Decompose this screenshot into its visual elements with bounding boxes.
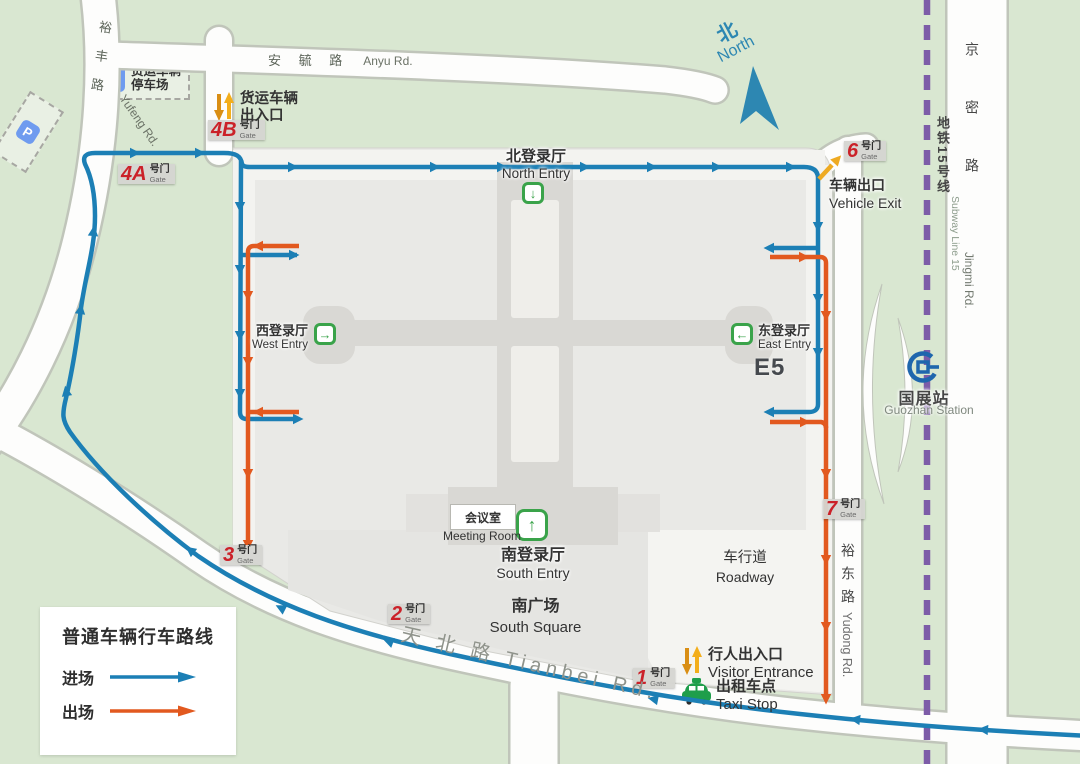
hall-desc: 煤矿机电 bbox=[414, 274, 471, 291]
parking-icon: P bbox=[756, 441, 792, 477]
gate-number: 3 bbox=[223, 546, 234, 564]
hall-w2: W2 煤矿机电生产辅助系统 bbox=[355, 343, 483, 400]
legend-entry-arrow bbox=[106, 670, 202, 684]
south-square-label: 南广场 South Square bbox=[468, 597, 603, 637]
hall-desc: 煤矿机电 bbox=[414, 346, 471, 363]
visitor-entrance-label: 行人出入口 Visitor Entrance bbox=[708, 646, 814, 682]
meeting-room-label: 会议室 bbox=[465, 509, 501, 526]
hall-code: W4 bbox=[368, 194, 414, 227]
hall-desc: 掘进 bbox=[591, 283, 643, 300]
yudong-rd-zh: 裕东路 bbox=[838, 543, 858, 612]
east-entry-icon: ← bbox=[731, 323, 753, 345]
legend-entry-row: 进场 bbox=[62, 665, 236, 689]
legend-exit-arrow bbox=[106, 704, 202, 718]
parking-lot-west-top: P bbox=[244, 183, 332, 246]
hall-desc: 综合主题馆 bbox=[739, 383, 804, 400]
gate-number: 4B bbox=[211, 121, 237, 139]
hall-w1: W1 国际馆 bbox=[355, 432, 483, 490]
jingmi-rd-zh: 京密路 bbox=[962, 42, 982, 216]
roadway-label: 车行道 Roadway bbox=[700, 549, 790, 586]
parking-lot-east-mid bbox=[734, 250, 818, 302]
hall-e2: 井下开采成套装备 E2 bbox=[578, 343, 712, 400]
north-arrow-icon bbox=[740, 66, 779, 130]
gate-number: 2 bbox=[391, 605, 402, 623]
unloading-area-w2: 卸货区 bbox=[380, 404, 482, 431]
parking-icon: P bbox=[270, 197, 306, 233]
exhibition-map: W4 综合主题馆 W3 煤矿机电生产辅助系统 W2 煤矿机电生产辅助系统 W1 … bbox=[0, 0, 1080, 764]
taxi-stop-label: 出租车点 Taxi Stop bbox=[716, 678, 778, 714]
legend-exit-row: 出场 bbox=[62, 699, 236, 723]
unloading-area-w4: 卸货区 bbox=[380, 240, 482, 268]
taxi-icon bbox=[682, 678, 711, 705]
hall-desc: 国际馆 bbox=[431, 453, 470, 470]
hall-code: E4 bbox=[662, 194, 699, 227]
meeting-room: 会议室 bbox=[450, 504, 516, 530]
hall-code: E1 bbox=[662, 445, 699, 478]
hall-desc: 综合主题馆 bbox=[414, 193, 471, 227]
freight-parking-label: 货运车辆 bbox=[131, 64, 181, 78]
subway-logo-icon bbox=[905, 349, 942, 386]
parking-lot-east-top: P bbox=[734, 187, 818, 247]
north-entry-label: 北登录厅 North Entry bbox=[476, 145, 596, 181]
compass-label: 北 North bbox=[705, 15, 757, 67]
hall-w3: W3 煤矿机电生产辅助系统 bbox=[355, 271, 483, 328]
gate-4a: 4A 号门Gate bbox=[118, 164, 175, 184]
hall-code: E3 bbox=[662, 283, 699, 316]
hall-desc: 井下开采 bbox=[591, 355, 643, 372]
parking-lot-west-bottom: P bbox=[244, 402, 332, 490]
gate-number: 6 bbox=[847, 142, 858, 160]
parking-lot-south bbox=[622, 501, 696, 527]
yudong-rd-en: Yudong Rd. bbox=[840, 612, 854, 677]
subway-line-en: Subway Line 15 bbox=[949, 196, 961, 271]
hall-code: W3 bbox=[368, 283, 414, 316]
gate6-exit-arrow bbox=[819, 152, 845, 179]
anyu-rd-label: 安 毓 路 Anyu Rd. bbox=[268, 50, 413, 69]
parking-lot-west-low bbox=[244, 356, 332, 398]
vehicle-exit-label: 车辆出口 Vehicle Exit bbox=[829, 177, 901, 212]
guozhan-station-en: Guozhan Station bbox=[874, 403, 984, 417]
parking-icon: P bbox=[270, 428, 306, 464]
subway-line-zh: 地铁15号线 bbox=[933, 116, 952, 194]
west-entry-icon: → bbox=[314, 323, 336, 345]
parking-lot-west-mid bbox=[244, 250, 332, 302]
gate-number: 7 bbox=[826, 500, 837, 518]
hall-w4: W4 综合主题馆 bbox=[355, 182, 483, 238]
north-entry-icon: ↓ bbox=[522, 182, 544, 204]
hall-code: E2 bbox=[662, 355, 699, 388]
parking-lot-east-bottom: P bbox=[730, 424, 818, 494]
visitor-entrance-icon bbox=[682, 646, 702, 675]
legend-exit-label: 出场 bbox=[62, 699, 106, 723]
unloading-area-e4: 卸货区 bbox=[600, 240, 692, 268]
gate-3: 3 号门Gate bbox=[220, 545, 262, 565]
hall-code: W2 bbox=[368, 355, 414, 388]
hall-desc: 井下开采 bbox=[591, 444, 643, 461]
parking-icon: P bbox=[384, 505, 400, 521]
parking-icon: P bbox=[758, 199, 794, 235]
south-entry-label: 南登录厅 South Entry bbox=[468, 541, 598, 581]
freight-entrance-label: 货运车辆 出入口 bbox=[240, 91, 298, 126]
vip-parking: P VIP bbox=[366, 500, 444, 525]
gate-number: 4A bbox=[121, 165, 147, 183]
parking-icon: P bbox=[14, 118, 42, 146]
gate-6: 6 号门Gate bbox=[844, 141, 886, 161]
legend-title: 普通车辆行车路线 bbox=[62, 623, 236, 649]
gate-7: 7 号门Gate bbox=[823, 499, 865, 519]
hall-e5-code: E5 bbox=[754, 354, 785, 382]
hall-e3: 掘进辅助运输 E3 bbox=[578, 271, 712, 328]
unloading-area-e2: 卸货区 bbox=[600, 404, 692, 431]
legend-entry-label: 进场 bbox=[62, 665, 106, 689]
meeting-room-en-label: Meeting Room bbox=[430, 529, 534, 543]
hall-e4: 综合主题馆 E4 bbox=[578, 182, 712, 238]
west-entry-label: 西登录厅 West Entry bbox=[238, 320, 308, 351]
hall-code: W1 bbox=[368, 445, 414, 478]
jingmi-rd-en: Jingmi Rd. bbox=[962, 252, 976, 309]
hall-e1: 井下开采成套装备 E1 bbox=[578, 432, 712, 490]
vip-label: VIP bbox=[406, 505, 427, 520]
east-entry-label: 东登录厅 East Entry bbox=[758, 320, 832, 351]
hall-desc: 综合主题馆 bbox=[591, 202, 656, 219]
freight-entrance-icon bbox=[214, 92, 234, 121]
parking-lot-yufeng: P bbox=[0, 91, 64, 173]
route-legend: 普通车辆行车路线 进场 出场 bbox=[40, 607, 236, 755]
yufeng-rd-en: Yufeng Rd. bbox=[117, 92, 163, 149]
